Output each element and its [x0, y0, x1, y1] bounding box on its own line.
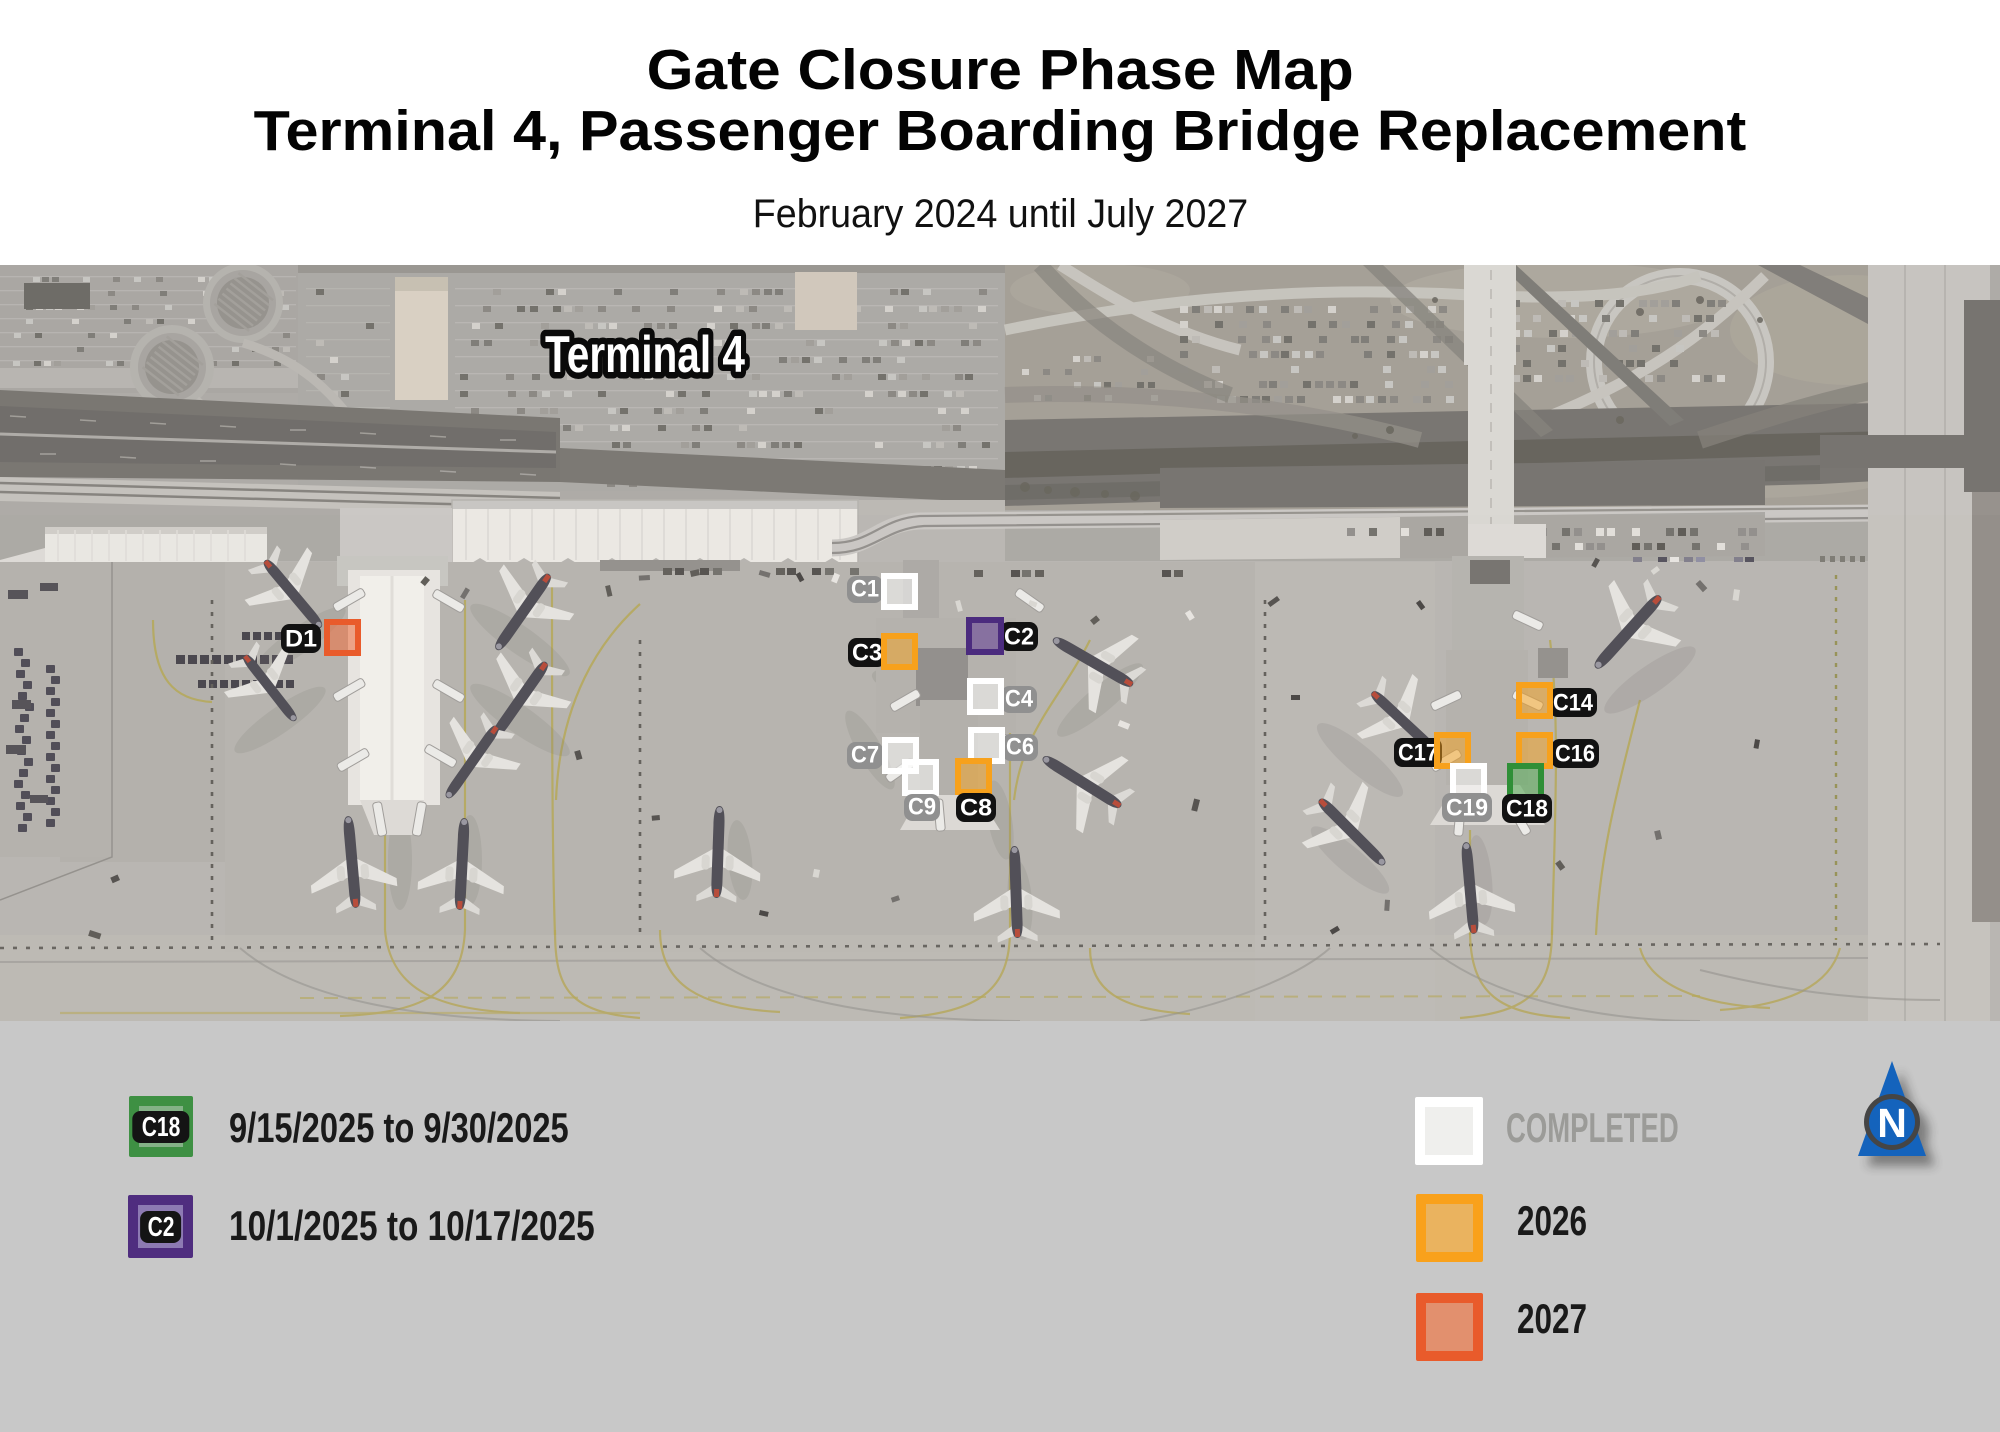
svg-text:C18: C18 — [1506, 796, 1548, 823]
svg-text:C14: C14 — [1553, 690, 1594, 717]
svg-text:N: N — [1877, 1100, 1907, 1146]
svg-text:D1: D1 — [285, 626, 317, 653]
svg-text:C4: C4 — [1005, 686, 1034, 713]
svg-text:C19: C19 — [1446, 795, 1488, 822]
svg-text:C17: C17 — [1398, 740, 1438, 767]
svg-text:C7: C7 — [851, 742, 879, 769]
svg-text:C1: C1 — [851, 576, 879, 603]
svg-text:C9: C9 — [908, 794, 936, 821]
svg-text:C3: C3 — [852, 640, 882, 667]
svg-text:C16: C16 — [1555, 741, 1595, 768]
svg-text:C2: C2 — [1004, 624, 1034, 651]
svg-text:Terminal 4: Terminal 4 — [545, 326, 745, 384]
svg-text:C6: C6 — [1006, 734, 1034, 761]
svg-text:C8: C8 — [960, 795, 992, 822]
